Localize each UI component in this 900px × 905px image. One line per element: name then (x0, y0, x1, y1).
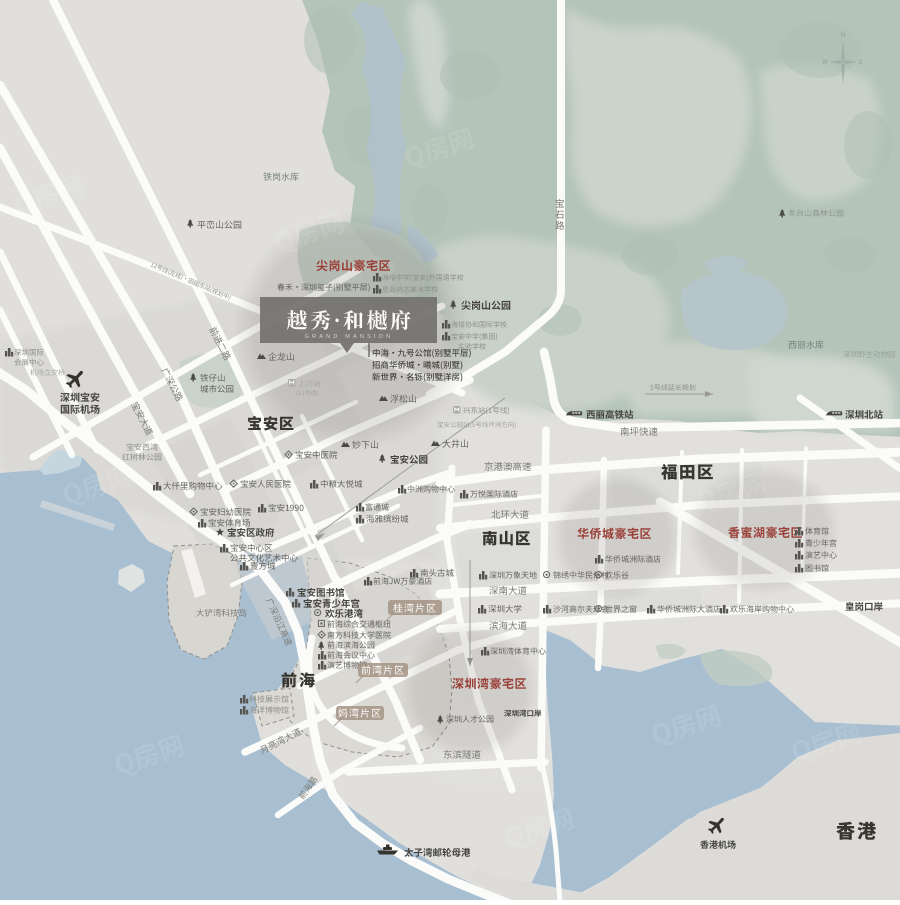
svg-text:E: E (859, 60, 863, 66)
svg-text:N: N (841, 33, 845, 39)
svg-text:GRAND MANSION: GRAND MANSION (305, 334, 394, 340)
svg-text:W: W (822, 60, 828, 66)
